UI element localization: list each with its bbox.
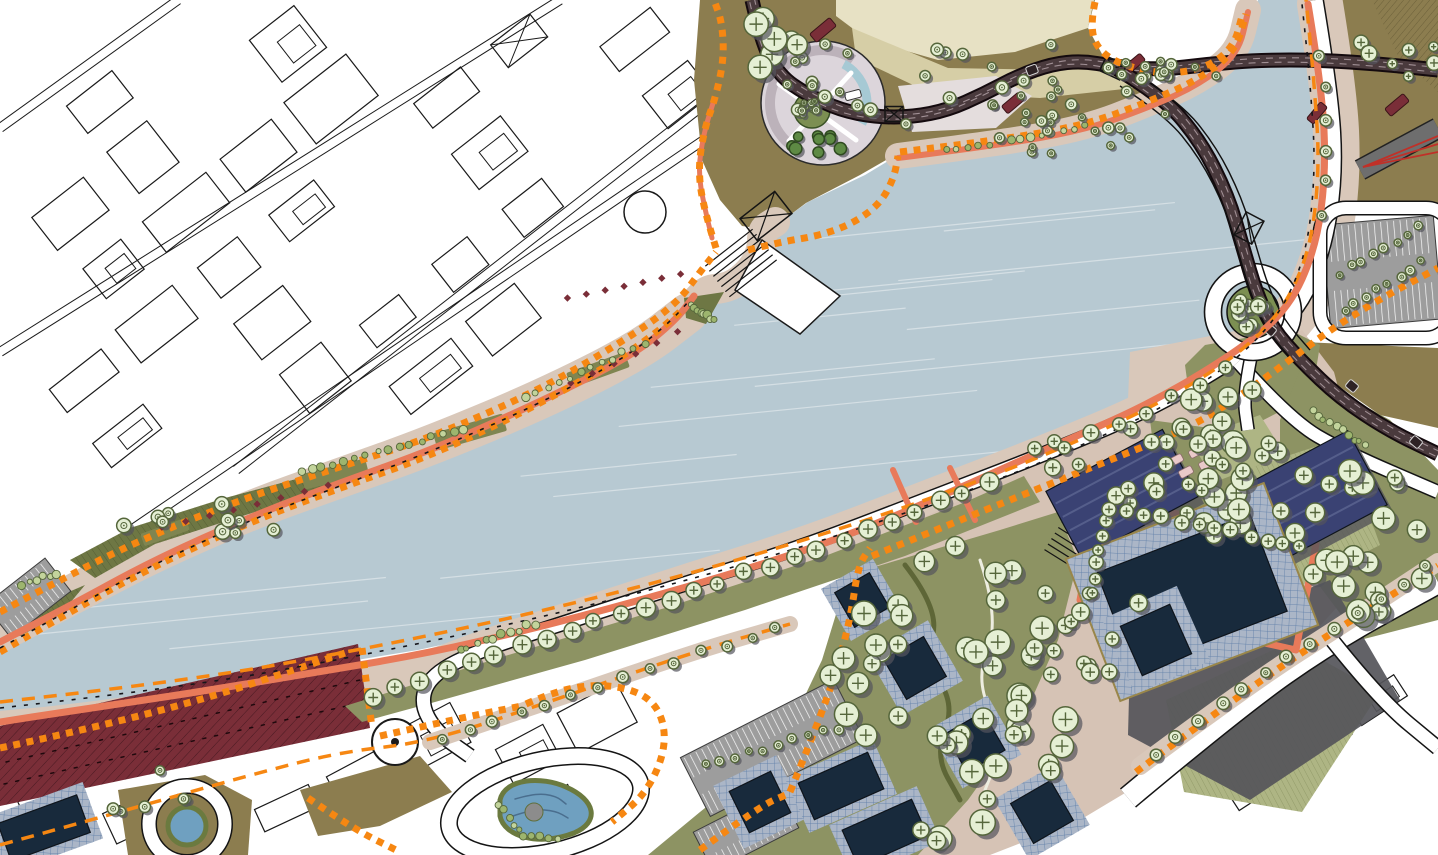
pocket-pond (168, 807, 206, 845)
masterplan-canvas (0, 0, 1438, 855)
masterplan-map (0, 0, 1438, 855)
pond-islet (525, 803, 543, 821)
harbor-circle (624, 191, 666, 233)
